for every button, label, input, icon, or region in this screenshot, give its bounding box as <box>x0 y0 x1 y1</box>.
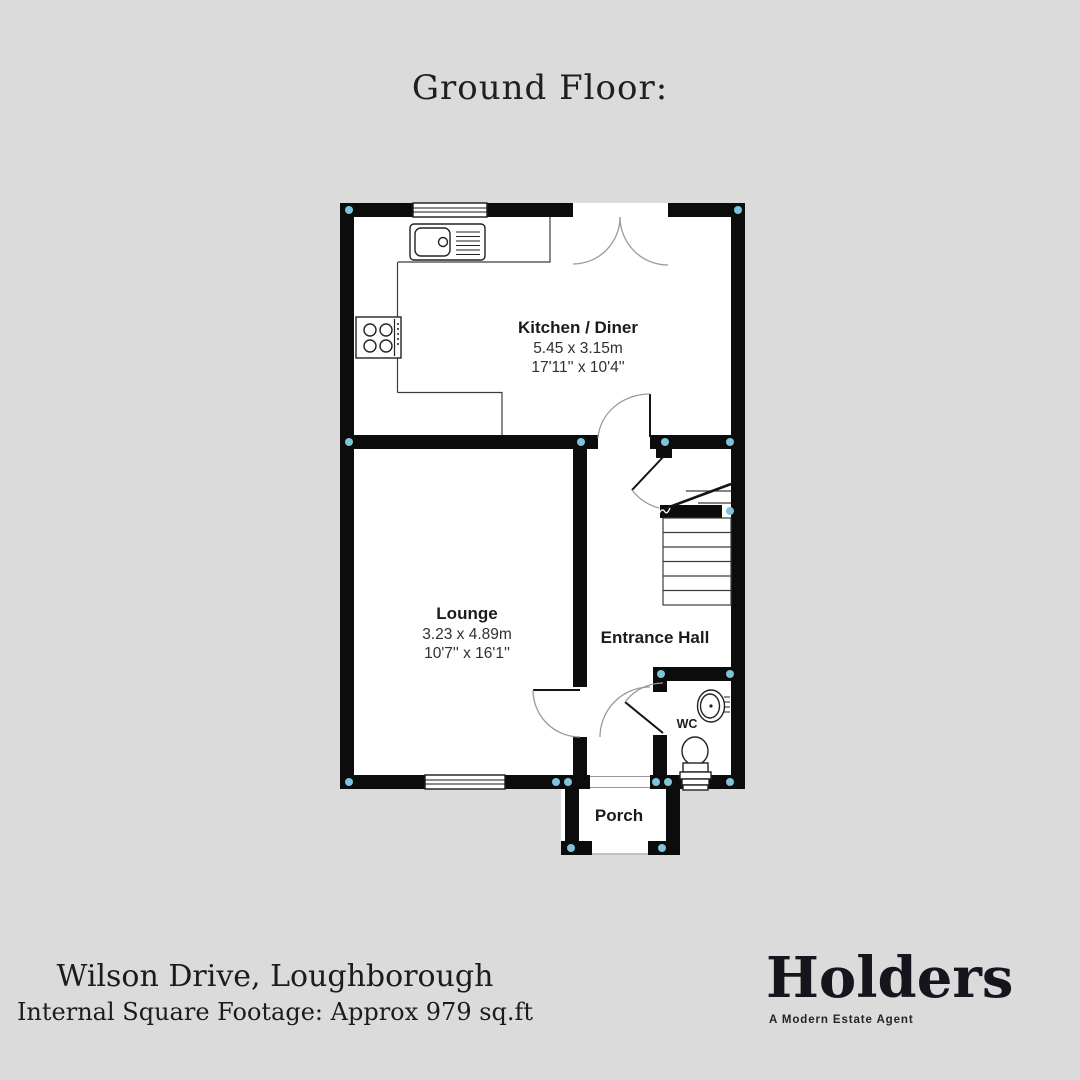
window-icon-kitchen <box>413 203 487 217</box>
room-label-porch: Porch <box>595 806 643 825</box>
hob-icon <box>356 317 401 358</box>
brand-name: Holders <box>766 948 1013 1008</box>
footer: Wilson Drive, Loughborough Internal Squa… <box>0 960 550 1026</box>
floorplan-page: Ground Floor: <box>0 0 1080 1080</box>
room-label-kitchen: Kitchen / Diner 5.45 x 3.15m 17'11'' x 1… <box>518 318 638 376</box>
kitchen-name: Kitchen / Diner <box>518 318 638 337</box>
floorplan: Kitchen / Diner 5.45 x 3.15m 17'11'' x 1… <box>0 0 1080 1080</box>
toilet-icon <box>680 737 711 790</box>
lounge-size-imperial: 10'7'' x 16'1'' <box>424 645 510 662</box>
sink-icon <box>410 224 485 260</box>
room-label-entrance-hall: Entrance Hall <box>601 628 710 647</box>
property-address: Wilson Drive, Loughborough <box>0 960 550 994</box>
porch-entrance-opening <box>592 841 648 855</box>
brand-tagline: A Modern Estate Agent <box>769 1014 1013 1026</box>
square-footage: Internal Square Footage: Approx 979 sq.f… <box>0 998 550 1026</box>
kitchen-size-metric: 5.45 x 3.15m <box>533 340 623 357</box>
kitchen-size-imperial: 17'11'' x 10'4'' <box>531 359 624 376</box>
brand-logo: Holders A Modern Estate Agent <box>766 948 1013 1026</box>
front-door-opening <box>590 775 650 789</box>
room-label-wc: WC <box>677 717 698 731</box>
lounge-name: Lounge <box>436 604 497 623</box>
lounge-size-metric: 3.23 x 4.89m <box>422 626 512 643</box>
window-icon-lounge <box>425 775 505 789</box>
